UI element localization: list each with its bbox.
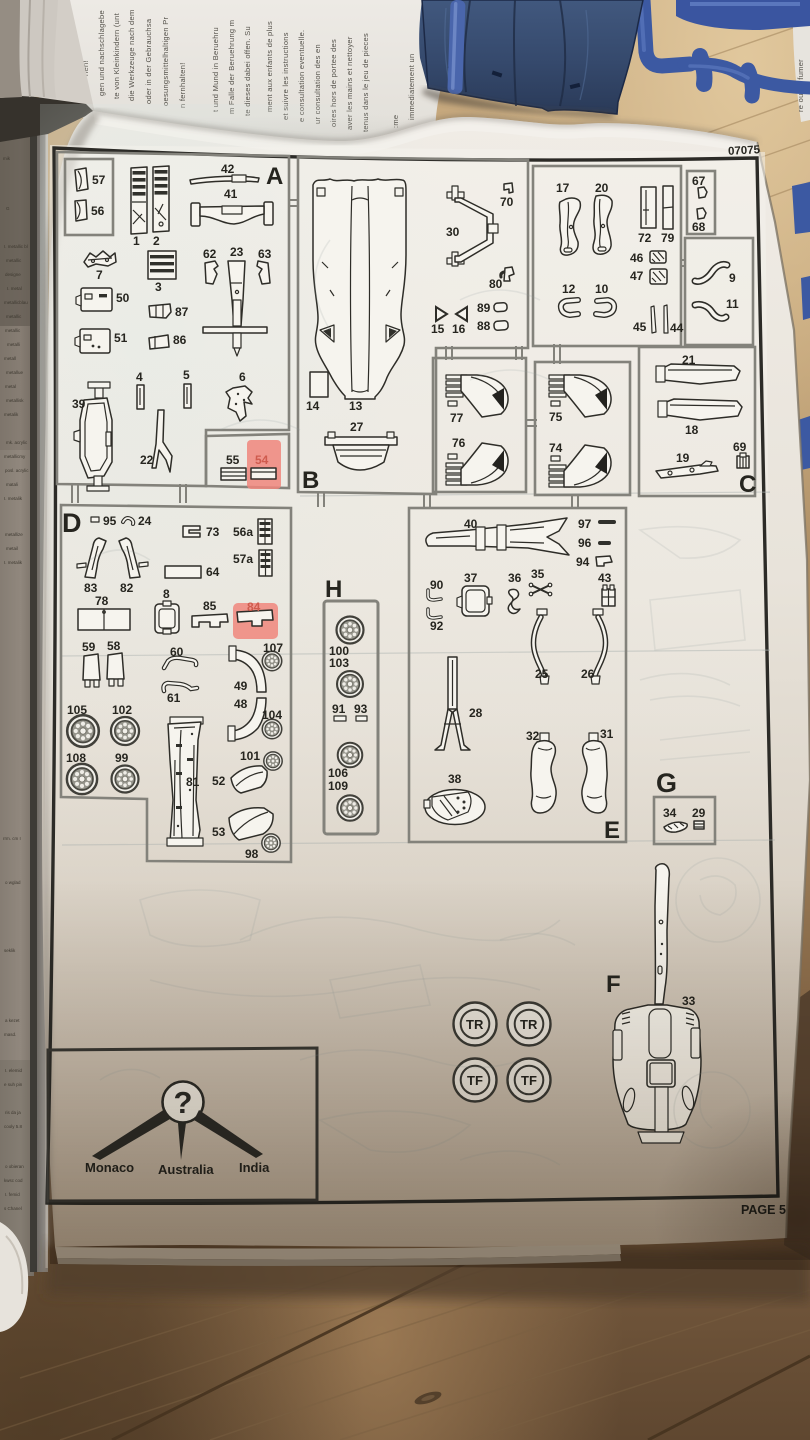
svg-text:86: 86: [173, 333, 187, 347]
svg-text:68: 68: [692, 220, 706, 234]
svg-text:52: 52: [212, 774, 226, 788]
svg-text:19: 19: [676, 451, 690, 465]
svg-text:gen und nachschlagebe: gen und nachschlagebe: [97, 10, 106, 96]
svg-text:107: 107: [263, 641, 283, 655]
svg-text:kwsc cod: kwsc cod: [4, 1178, 23, 1183]
svg-text:63: 63: [258, 247, 272, 261]
svg-text:44: 44: [670, 321, 684, 335]
svg-text:a kezet: a kezet: [5, 1018, 20, 1023]
svg-text:35: 35: [531, 567, 545, 581]
svg-text:8: 8: [163, 587, 170, 601]
svg-text:67: 67: [692, 174, 706, 188]
svg-text:4: 4: [136, 370, 143, 384]
svg-text:metallicblau: metallicblau: [4, 300, 28, 305]
svg-text:60: 60: [170, 645, 184, 659]
svg-text:6: 6: [239, 370, 246, 384]
svg-text:7: 7: [96, 268, 103, 282]
svg-text:32: 32: [526, 729, 540, 743]
svg-text:rrm. cm I: rrm. cm I: [3, 836, 21, 841]
svg-text:oesungsmittelhaltigen Pr: oesungsmittelhaltigen Pr: [161, 16, 170, 106]
svg-text:56: 56: [91, 204, 105, 218]
svg-text:43: 43: [598, 571, 612, 585]
svg-text:I. femid: I. femid: [5, 1192, 20, 1197]
svg-text:73: 73: [206, 525, 220, 539]
svg-text:109: 109: [328, 779, 348, 793]
svg-text:H: H: [325, 576, 342, 603]
svg-text:46: 46: [630, 251, 644, 265]
svg-text:106: 106: [328, 766, 348, 780]
svg-text:56a: 56a: [233, 525, 253, 539]
svg-text:41: 41: [224, 187, 238, 201]
svg-text:47: 47: [630, 269, 644, 283]
svg-text:38: 38: [448, 772, 462, 786]
svg-text:54: 54: [255, 453, 269, 467]
svg-text:26: 26: [581, 667, 595, 681]
svg-text:51: 51: [114, 331, 128, 345]
svg-text:13: 13: [349, 399, 363, 413]
svg-text:m Falle der Beruehrung m: m Falle der Beruehrung m: [227, 20, 236, 114]
svg-text:die Werkzeuge nach dem: die Werkzeuge nach dem: [127, 9, 136, 101]
svg-text:92: 92: [430, 619, 444, 633]
svg-text:posl. acrylic: posl. acrylic: [5, 468, 29, 473]
svg-text:07075: 07075: [728, 144, 761, 158]
svg-text:2: 2: [153, 234, 160, 248]
svg-text:61: 61: [167, 691, 181, 705]
svg-text:14: 14: [306, 399, 320, 413]
svg-text:64: 64: [206, 565, 220, 579]
svg-text:45: 45: [633, 320, 647, 334]
svg-text:91: 91: [332, 702, 346, 716]
svg-text:88: 88: [477, 319, 491, 333]
svg-text:I. metalik: I. metalik: [4, 560, 23, 565]
svg-text:matali: matali: [6, 482, 18, 487]
svg-text:B: B: [302, 467, 319, 494]
svg-text:metallic: metallic: [6, 258, 22, 263]
svg-text:o wglad: o wglad: [5, 880, 21, 885]
svg-text:34: 34: [663, 806, 677, 820]
svg-text:metallic: metallic: [6, 314, 22, 319]
svg-text:72: 72: [638, 231, 652, 245]
svg-text:G: G: [6, 206, 10, 211]
svg-text:25: 25: [535, 667, 549, 681]
svg-text:te dieses dabei offen. Su: te dieses dabei offen. Su: [243, 26, 252, 116]
svg-text:E: E: [604, 817, 620, 844]
svg-text:49: 49: [234, 679, 248, 693]
svg-text:24: 24: [138, 514, 152, 528]
svg-text:58: 58: [107, 639, 121, 653]
svg-text:30: 30: [446, 225, 460, 239]
svg-text:102: 102: [112, 703, 132, 717]
svg-text:94: 94: [576, 555, 590, 569]
svg-text:82: 82: [120, 581, 134, 595]
svg-text:104: 104: [262, 708, 282, 722]
svg-text:40: 40: [464, 517, 478, 531]
svg-text:designe: designe: [5, 272, 21, 277]
svg-text:metal: metal: [5, 384, 16, 389]
svg-text:98: 98: [245, 847, 259, 861]
svg-text:42: 42: [221, 162, 235, 176]
svg-text:22: 22: [140, 453, 154, 467]
svg-text:57: 57: [92, 173, 106, 187]
svg-text:79: 79: [661, 231, 675, 245]
svg-text:mk. acrylic: mk. acrylic: [6, 440, 28, 445]
svg-text:17: 17: [556, 181, 570, 195]
svg-text:o obieran: o obieran: [5, 1164, 24, 1169]
svg-text:e suh pin: e suh pin: [4, 1082, 23, 1087]
svg-text:10: 10: [595, 282, 609, 296]
svg-text:97: 97: [578, 517, 592, 531]
svg-text:n fernhalten!: n fernhalten!: [178, 62, 187, 108]
svg-text:36: 36: [508, 571, 522, 585]
svg-text:metalli: metalli: [7, 342, 20, 347]
svg-text:I. metalik: I. metalik: [4, 496, 23, 501]
svg-text:1: 1: [133, 234, 140, 248]
svg-text:62: 62: [203, 247, 217, 261]
svg-text:105: 105: [67, 703, 87, 717]
svg-text:99: 99: [115, 751, 129, 765]
svg-text:oder in der Gebrauchsa: oder in der Gebrauchsa: [144, 18, 153, 104]
svg-text:18: 18: [685, 423, 699, 437]
svg-text:mik: mik: [3, 156, 11, 161]
svg-text:3: 3: [155, 280, 162, 294]
svg-text:G: G: [656, 768, 677, 798]
svg-text:D: D: [62, 508, 82, 538]
svg-text:metallue: metallue: [6, 370, 24, 375]
svg-text:37: 37: [464, 571, 478, 585]
svg-text:83: 83: [84, 581, 98, 595]
svg-text:29: 29: [692, 806, 706, 820]
svg-text:metallize: metallize: [5, 532, 23, 537]
svg-text:masd.: masd.: [4, 1032, 16, 1037]
svg-text:85: 85: [203, 599, 217, 613]
svg-text:39: 39: [72, 397, 86, 411]
svg-text:21: 21: [682, 353, 696, 367]
svg-text:78: 78: [95, 594, 109, 608]
svg-text:I. metallic bl: I. metallic bl: [4, 244, 28, 249]
svg-text:27: 27: [350, 420, 364, 434]
svg-text:87: 87: [175, 305, 189, 319]
svg-text:C: C: [739, 471, 756, 498]
svg-text:12: 12: [562, 282, 576, 296]
svg-text:31: 31: [600, 727, 614, 741]
svg-text:95: 95: [103, 514, 117, 528]
svg-text:74: 74: [549, 441, 563, 455]
svg-text:te von Kleinkindern (unt: te von Kleinkindern (unt: [112, 12, 121, 99]
svg-text:16: 16: [452, 322, 466, 336]
svg-text:15: 15: [431, 322, 445, 336]
svg-text:metall: metall: [4, 356, 16, 361]
svg-text:53: 53: [212, 825, 226, 839]
svg-text:9: 9: [729, 271, 736, 285]
svg-text:23: 23: [230, 245, 244, 259]
svg-text:s Chanel: s Chanel: [4, 1206, 22, 1211]
svg-text:20: 20: [595, 181, 609, 195]
svg-text:metallisk: metallisk: [6, 398, 24, 403]
svg-text:101: 101: [240, 749, 260, 763]
svg-text:57a: 57a: [233, 552, 253, 566]
svg-text:69: 69: [733, 440, 747, 454]
svg-text:seklik: seklik: [4, 948, 16, 953]
svg-text:76: 76: [452, 436, 466, 450]
svg-text:59: 59: [82, 640, 96, 654]
svg-text:75: 75: [549, 410, 563, 424]
svg-text:90: 90: [430, 578, 444, 592]
svg-text:81: 81: [186, 775, 200, 789]
svg-text:cooly 5.8: cooly 5.8: [4, 1124, 23, 1129]
svg-text:89: 89: [477, 301, 491, 315]
svg-text:t und Mund in Beruehru: t und Mund in Beruehru: [211, 27, 220, 112]
svg-text:50: 50: [116, 291, 130, 305]
svg-text:ris da ja: ris da ja: [5, 1110, 21, 1115]
svg-text:11: 11: [726, 297, 739, 311]
svg-text:metalik: metalik: [4, 412, 19, 417]
svg-text:80: 80: [489, 277, 503, 291]
svg-text:28: 28: [469, 706, 483, 720]
svg-text:93: 93: [354, 702, 368, 716]
svg-text:metallicmy: metallicmy: [4, 454, 26, 459]
svg-text:108: 108: [66, 751, 86, 765]
svg-text:5: 5: [183, 368, 190, 382]
svg-text:77: 77: [450, 411, 464, 425]
svg-text:ment aux enfants de plus: ment aux enfants de plus: [265, 21, 274, 112]
svg-text:96: 96: [578, 536, 592, 550]
svg-text:A: A: [266, 163, 283, 190]
svg-text:55: 55: [226, 453, 240, 467]
svg-text:metail: metail: [6, 546, 18, 551]
svg-text:48: 48: [234, 697, 248, 711]
svg-text:103: 103: [329, 656, 349, 670]
svg-text:84: 84: [247, 600, 261, 614]
svg-text:I. metal: I. metal: [7, 286, 22, 291]
svg-text:I. elemid: I. elemid: [5, 1068, 23, 1073]
svg-text:metallic: metallic: [5, 328, 21, 333]
svg-text:70: 70: [500, 195, 514, 209]
